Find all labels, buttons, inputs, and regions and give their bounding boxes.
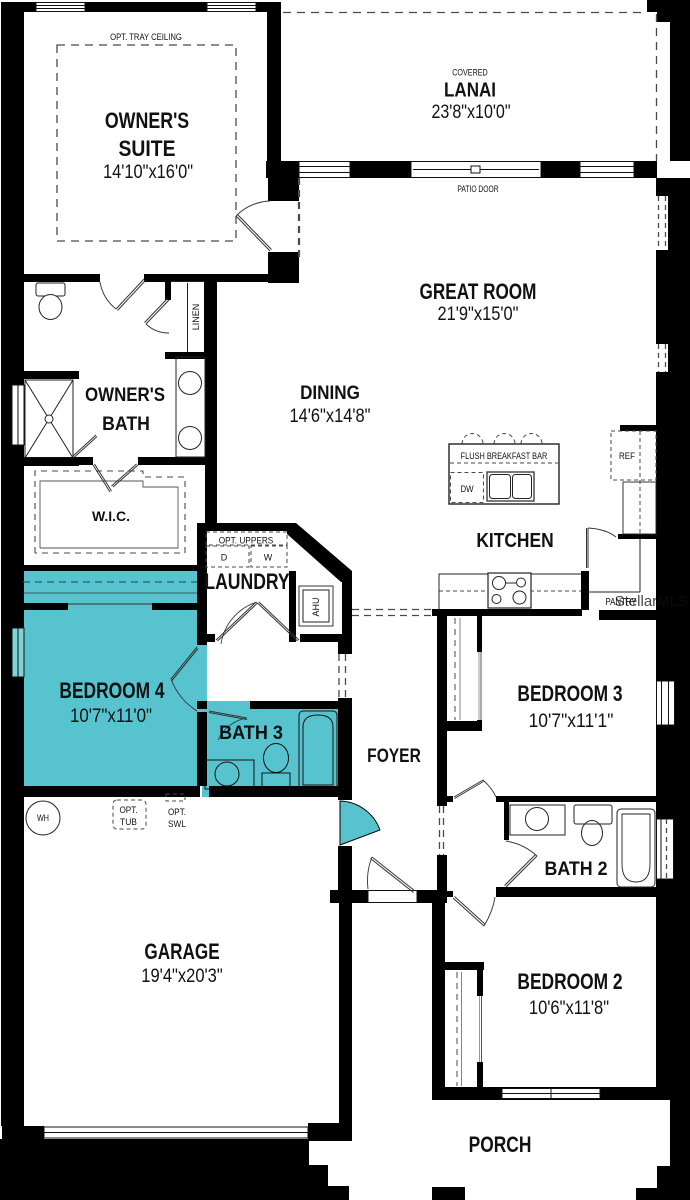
svg-text:OPT.: OPT. [168,807,186,818]
svg-text:10'7"x11'0": 10'7"x11'0" [70,705,152,726]
svg-text:BATH 3: BATH 3 [219,722,283,744]
svg-text:PORCH: PORCH [469,1133,532,1157]
svg-text:14'6"x14'8": 14'6"x14'8" [290,405,371,426]
svg-text:W.I.C.: W.I.C. [92,508,130,524]
svg-text:D: D [221,553,228,563]
svg-text:LAUNDRY: LAUNDRY [204,570,289,594]
svg-text:23'8"x10'0": 23'8"x10'0" [431,101,510,123]
svg-text:21'9"x15'0": 21'9"x15'0" [438,303,519,324]
svg-text:OPT. TRAY CEILING: OPT. TRAY CEILING [110,31,182,42]
svg-text:TUB: TUB [120,817,137,827]
svg-text:SUITE: SUITE [118,137,175,161]
svg-text:GREAT ROOM: GREAT ROOM [420,280,537,305]
svg-text:BEDROOM 2: BEDROOM 2 [517,970,622,994]
svg-text:LANAI: LANAI [444,78,496,101]
svg-text:W: W [264,553,273,563]
svg-text:OWNER'S: OWNER'S [105,109,189,133]
svg-text:OPT.: OPT. [120,805,138,816]
svg-text:REF: REF [619,451,635,462]
svg-text:FOYER: FOYER [367,745,421,767]
svg-text:PATIO DOOR: PATIO DOOR [457,184,499,194]
svg-text:KITCHEN: KITCHEN [476,529,553,551]
svg-text:OPT. UPPERS: OPT. UPPERS [219,535,274,545]
svg-text:10'7"x11'1": 10'7"x11'1" [529,709,614,731]
svg-text:BATH 2: BATH 2 [544,857,607,879]
svg-text:GARAGE: GARAGE [144,940,219,965]
svg-text:19'4"x20'3": 19'4"x20'3" [141,965,222,986]
svg-text:14'10"x16'0": 14'10"x16'0" [103,161,193,182]
svg-text:BATH: BATH [102,412,150,434]
svg-text:10'6"x11'8": 10'6"x11'8" [529,997,609,1018]
svg-text:OWNER'S: OWNER'S [85,384,165,405]
svg-text:AHU: AHU [311,597,321,616]
svg-text:WH: WH [37,813,49,823]
svg-text:SWL: SWL [168,819,186,829]
svg-text:BEDROOM 3: BEDROOM 3 [517,682,622,706]
svg-text:DW: DW [460,483,473,494]
svg-text:FLUSH BREAKFAST BAR: FLUSH BREAKFAST BAR [461,451,548,461]
svg-text:LINEN: LINEN [191,304,201,331]
svg-text:StellarMLS: StellarMLS [615,593,688,610]
svg-text:DINING: DINING [300,382,360,403]
svg-text:BEDROOM 4: BEDROOM 4 [59,679,164,703]
svg-text:COVERED: COVERED [452,68,488,78]
